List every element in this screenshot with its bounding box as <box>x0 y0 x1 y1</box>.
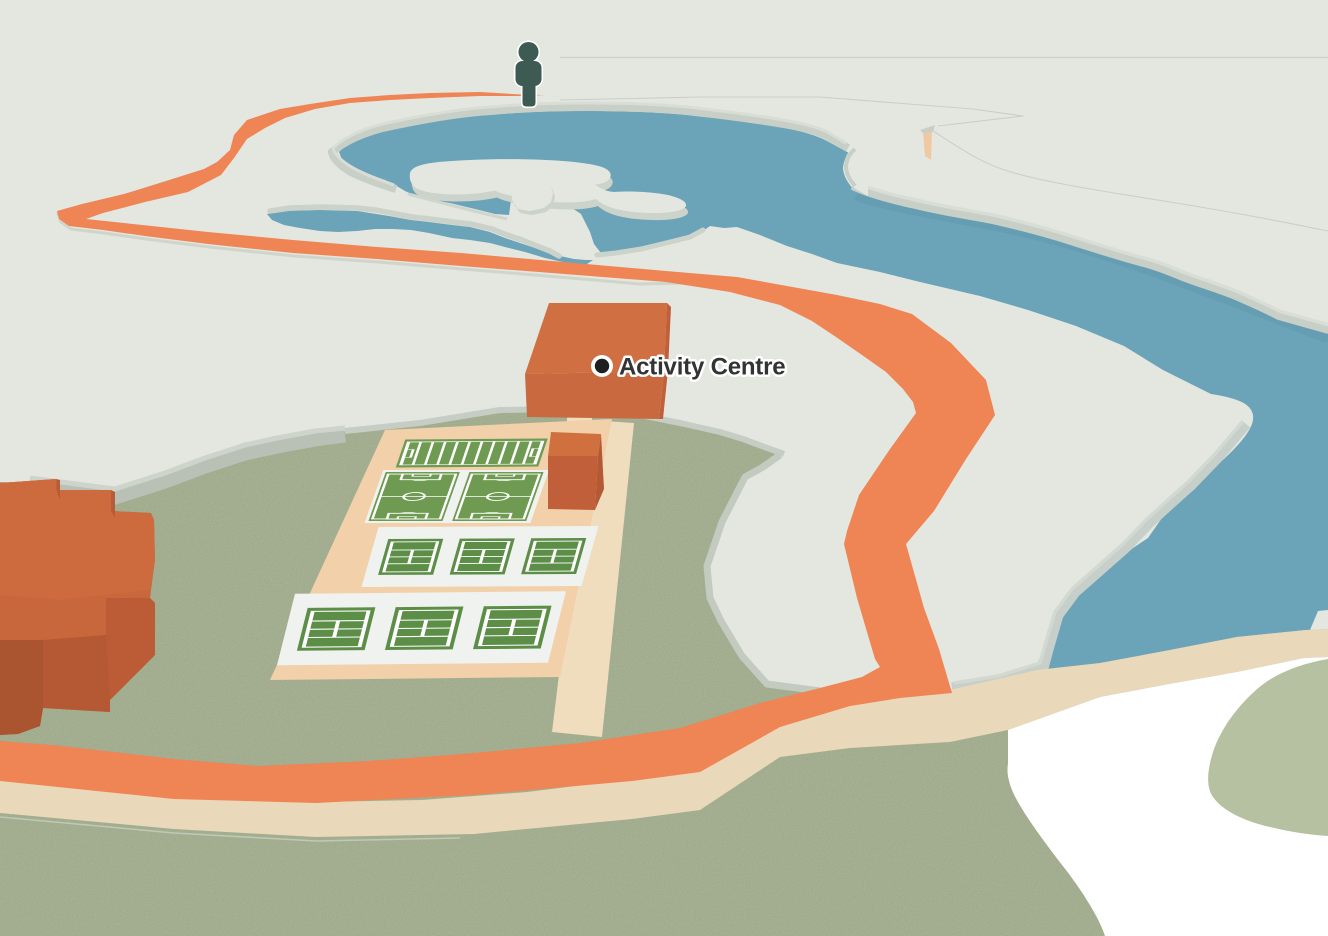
svg-text:Activity Centre: Activity Centre <box>619 354 785 381</box>
